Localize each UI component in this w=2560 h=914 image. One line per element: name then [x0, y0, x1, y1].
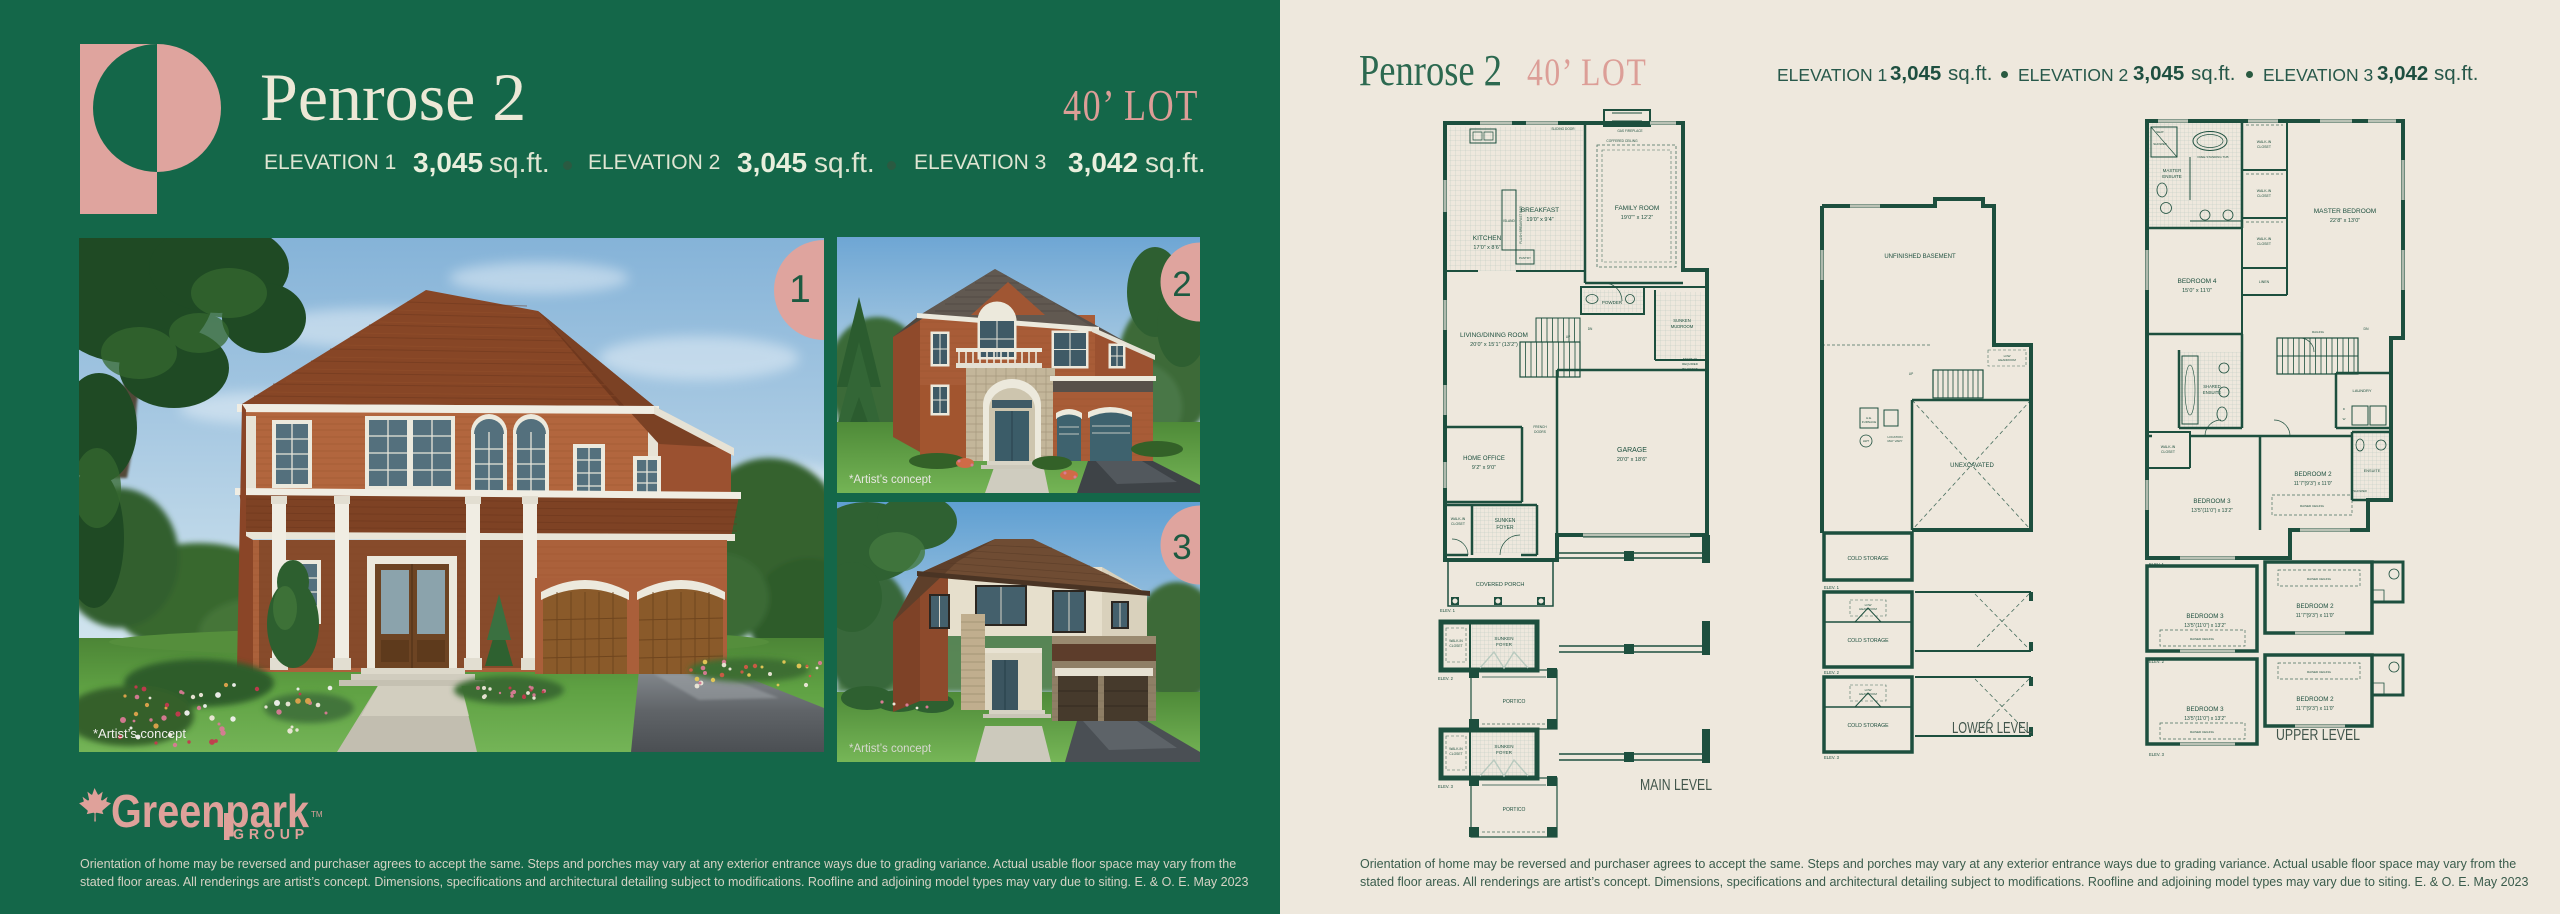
svg-text:22’8” x 13’0”: 22’8” x 13’0” — [2330, 218, 2360, 224]
svg-text:CLOSET: CLOSET — [1449, 752, 1462, 756]
svg-text:SUNKEN: SUNKEN — [1494, 636, 1513, 641]
svg-text:HOME OFFICE: HOME OFFICE — [1463, 456, 1505, 462]
svg-text:COVERED PORCH: COVERED PORCH — [1476, 582, 1525, 588]
svg-text:DN: DN — [1588, 327, 1593, 331]
svg-text:FRENCH: FRENCH — [1533, 425, 1547, 429]
svg-text:13’5”(11’0”) x 13’2”: 13’5”(11’0”) x 13’2” — [2184, 716, 2226, 722]
svg-text:17’0” x 8’6”: 17’0” x 8’6” — [1473, 245, 1500, 251]
svg-text:RAISED CEILING: RAISED CEILING — [2307, 577, 2332, 581]
svg-text:*Artist’s concept: *Artist’s concept — [849, 474, 932, 486]
svg-text:FOYER: FOYER — [1496, 750, 1513, 755]
svg-text:ELEV. 2: ELEV. 2 — [1824, 670, 1840, 675]
svg-text:13’5”(11’0”) x 13’2”: 13’5”(11’0”) x 13’2” — [2191, 508, 2233, 514]
svg-text:WALK-IN: WALK-IN — [2257, 189, 2272, 193]
svg-text:SUNKEN: SUNKEN — [1495, 518, 1516, 524]
svg-text:W: W — [2343, 417, 2346, 421]
svg-text:RAISED CEILING: RAISED CEILING — [2190, 637, 2215, 641]
svg-text:KITCHEN: KITCHEN — [1473, 235, 1502, 242]
svg-text:UP: UP — [1566, 335, 1570, 339]
svg-text:2: 2 — [1172, 265, 1191, 304]
svg-text:LOWER LEVEL: LOWER LEVEL — [1952, 720, 2032, 737]
svg-text:BEDROOM 3: BEDROOM 3 — [2193, 498, 2231, 505]
svg-text:RAISED CEILING: RAISED CEILING — [2190, 730, 2215, 734]
svg-text:FURNACE: FURNACE — [1862, 420, 1877, 424]
svg-text:PORTICO: PORTICO — [1503, 807, 1526, 813]
svg-text:LIVING/DINING ROOM: LIVING/DINING ROOM — [1460, 332, 1528, 339]
svg-text:20’0” x 15’1” (13’2”): 20’0” x 15’1” (13’2”) — [1470, 342, 1518, 348]
svg-text:WALK-IN: WALK-IN — [2257, 237, 2272, 241]
svg-text:FREE STANDING TUB: FREE STANDING TUB — [2198, 155, 2229, 159]
svg-text:SEAT: SEAT — [2156, 130, 2164, 134]
svg-text:RAISED CEILING: RAISED CEILING — [2307, 670, 2332, 674]
svg-text:HEADROOM: HEADROOM — [1859, 692, 1877, 696]
svg-text:CLOSET: CLOSET — [2257, 194, 2272, 198]
svg-text:SHARED: SHARED — [2203, 384, 2220, 389]
svg-text:UNFINISHED BASEMENT: UNFINISHED BASEMENT — [1884, 254, 1956, 260]
svg-text:BEDROOM 4: BEDROOM 4 — [2177, 278, 2216, 285]
svg-text:11’7”(9’3”) x 11’0”: 11’7”(9’3”) x 11’0” — [2296, 706, 2335, 712]
svg-text:DN: DN — [2363, 327, 2369, 331]
svg-text:BREAKFAST: BREAKFAST — [1521, 207, 1559, 214]
svg-text:RAISED CEILING: RAISED CEILING — [2300, 504, 2325, 508]
svg-text:BEDROOM 2: BEDROOM 2 — [2296, 603, 2334, 610]
svg-text:19’0”’’ x 12’2”: 19’0”’’ x 12’2” — [1621, 215, 1654, 221]
svg-text:SUNKEN: SUNKEN — [1494, 744, 1513, 749]
svg-text:PORTICO: PORTICO — [1503, 699, 1526, 705]
svg-text:BY GRADE: BY GRADE — [1682, 367, 1697, 371]
svg-text:UP: UP — [1909, 372, 1913, 376]
svg-text:CLOSET: CLOSET — [2257, 145, 2272, 149]
svg-text:TM: TM — [311, 810, 323, 819]
svg-text:GAS FIREPLACE: GAS FIREPLACE — [1617, 129, 1642, 133]
svg-text:FAMILY ROOM: FAMILY ROOM — [1615, 205, 1660, 212]
svg-text:LINEN: LINEN — [2259, 280, 2270, 284]
svg-text:D: D — [2343, 407, 2346, 411]
svg-text:RAILING: RAILING — [2312, 330, 2325, 334]
svg-text:UNEXCAVATED: UNEXCAVATED — [1950, 463, 1994, 469]
svg-text:HEADROOM: HEADROOM — [1998, 358, 2016, 362]
svg-text:BEDROOM 2: BEDROOM 2 — [2296, 696, 2334, 703]
svg-text:BEDROOM 2: BEDROOM 2 — [2294, 471, 2332, 478]
svg-text:FOYER: FOYER — [1496, 525, 1514, 531]
svg-text:HEADROOM: HEADROOM — [1859, 607, 1877, 611]
svg-text:ELEV. 3: ELEV. 3 — [1438, 784, 1454, 789]
svg-text:SHOWER: SHOWER — [2353, 489, 2367, 493]
svg-text:COFFERED CEILING: COFFERED CEILING — [1606, 139, 1638, 143]
svg-text:COLD STORAGE: COLD STORAGE — [1847, 638, 1889, 644]
svg-text:STEPS AS: STEPS AS — [1683, 357, 1698, 361]
svg-text:SLIDING DOOR: SLIDING DOOR — [1551, 127, 1575, 131]
svg-text:ELEV. 3: ELEV. 3 — [1824, 755, 1840, 760]
svg-text:1: 1 — [789, 268, 811, 311]
svg-text:11’7”(9’3”) x 11’0”: 11’7”(9’3”) x 11’0” — [2296, 613, 2335, 619]
svg-text:15’0” x 11’0”: 15’0” x 11’0” — [2182, 288, 2212, 294]
svg-text:GARAGE: GARAGE — [1617, 447, 1647, 454]
svg-text:WALK-IN: WALK-IN — [2257, 140, 2272, 144]
svg-text:MAY VARY: MAY VARY — [1888, 439, 1903, 443]
svg-text:3: 3 — [1172, 528, 1191, 567]
svg-text:19’0” x 9’4”: 19’0” x 9’4” — [1526, 217, 1553, 223]
svg-text:ENSUITE: ENSUITE — [2364, 469, 2381, 473]
svg-text:DOORS: DOORS — [1534, 430, 1546, 434]
svg-text:ENSUITE: ENSUITE — [2203, 390, 2221, 395]
svg-text:BEDROOM 3: BEDROOM 3 — [2186, 613, 2224, 620]
svg-text:*Artist’s concept: *Artist’s concept — [93, 726, 186, 741]
svg-text:LAUNDRY: LAUNDRY — [2352, 388, 2371, 393]
svg-text:COLD STORAGE: COLD STORAGE — [1847, 723, 1889, 729]
svg-text:13’5”(11’0”) x 13’2”: 13’5”(11’0”) x 13’2” — [2184, 623, 2226, 629]
svg-text:COLD STORAGE: COLD STORAGE — [1847, 556, 1889, 562]
svg-text:CLOSET: CLOSET — [1449, 644, 1462, 648]
svg-text:CLOSET: CLOSET — [1451, 522, 1466, 526]
svg-text:HWT: HWT — [1863, 439, 1870, 443]
svg-text:CLOSET: CLOSET — [2257, 242, 2272, 246]
svg-text:ELEV. 1: ELEV. 1 — [1440, 608, 1456, 613]
svg-text:UPPER LEVEL: UPPER LEVEL — [2276, 727, 2360, 744]
svg-text:ELEV. 1: ELEV. 1 — [1824, 585, 1840, 590]
svg-text:ELEV. 3: ELEV. 3 — [2149, 752, 2165, 757]
svg-text:MAIN LEVEL: MAIN LEVEL — [1640, 777, 1712, 794]
svg-text:MUDROOM: MUDROOM — [1671, 324, 1694, 329]
svg-text:PANTRY: PANTRY — [1519, 256, 1531, 260]
svg-text:REQUIRED: REQUIRED — [1682, 362, 1699, 366]
svg-text:GROUP: GROUP — [233, 827, 309, 843]
svg-text:WALK-IN: WALK-IN — [1449, 747, 1463, 751]
svg-text:MASTER BEDROOM: MASTER BEDROOM — [2314, 208, 2376, 215]
svg-text:CLOSET: CLOSET — [2161, 450, 2176, 454]
svg-text:11’7”(9’3”) x 11’0”: 11’7”(9’3”) x 11’0” — [2294, 481, 2333, 487]
svg-text:MASTER: MASTER — [2163, 168, 2183, 173]
svg-text:ENSUITE: ENSUITE — [2162, 174, 2182, 179]
svg-text:ELEV. 2: ELEV. 2 — [1438, 676, 1454, 681]
svg-text:9’2” x 9’0”: 9’2” x 9’0” — [1472, 465, 1496, 471]
svg-text:POWDER: POWDER — [1602, 300, 1623, 305]
svg-text:ISLAND: ISLAND — [1503, 219, 1515, 223]
svg-text:20’0” x 18’6”: 20’0” x 18’6” — [1617, 457, 1647, 463]
svg-text:BEDROOM 3: BEDROOM 3 — [2186, 706, 2224, 713]
svg-text:FOYER: FOYER — [1496, 642, 1513, 647]
svg-text:WALK-IN: WALK-IN — [2161, 445, 2176, 449]
svg-text:SHOWER: SHOWER — [2153, 142, 2167, 146]
svg-text:WALK-IN: WALK-IN — [1449, 639, 1463, 643]
svg-text:WALK-IN: WALK-IN — [1451, 517, 1466, 521]
svg-text:*Artist’s concept: *Artist’s concept — [849, 743, 932, 755]
svg-text:SUNKEN: SUNKEN — [1673, 318, 1690, 323]
